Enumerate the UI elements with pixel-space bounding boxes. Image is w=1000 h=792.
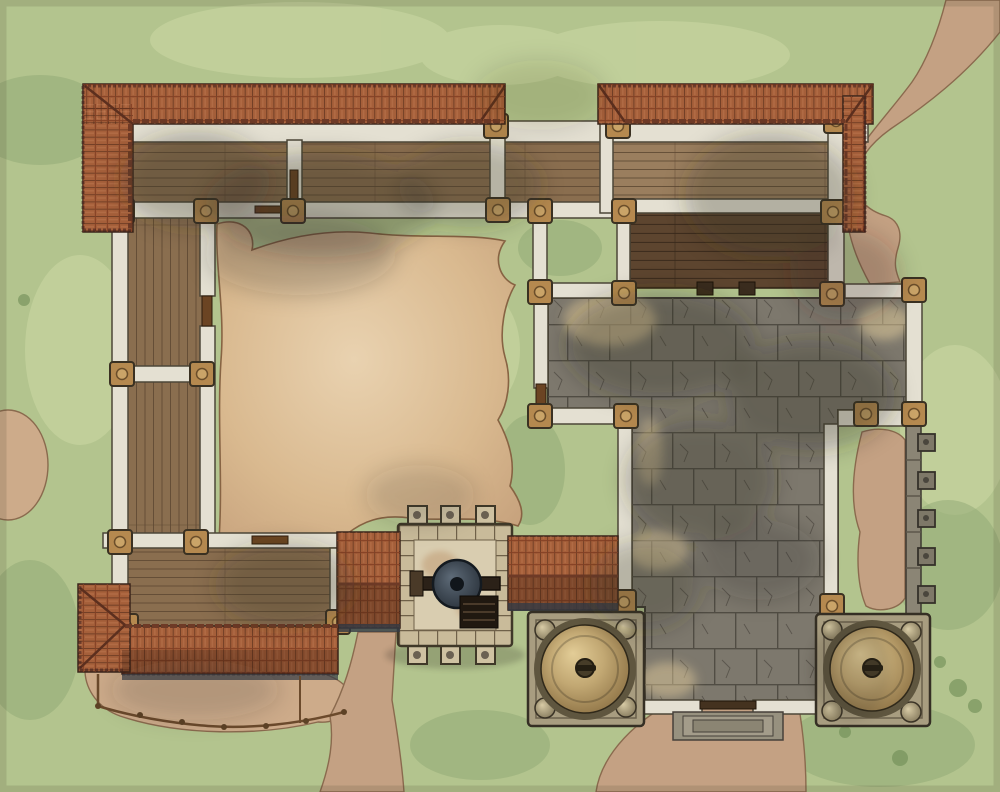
gate-bar	[700, 701, 756, 709]
gatehouse	[385, 506, 525, 669]
winch-bracket	[410, 571, 423, 596]
left-dome-tower	[528, 612, 644, 726]
west-wing-east-wall-b	[200, 326, 215, 545]
right-dome-tower	[810, 614, 930, 726]
west-wing-door	[202, 296, 212, 326]
east-outer-wall	[906, 296, 922, 408]
courtyard-north-wall-a	[548, 283, 618, 298]
deck-step-right	[739, 282, 755, 295]
courtyard-west-door	[536, 384, 546, 406]
courtyard-narrow-east-wall	[824, 424, 838, 614]
courtyard-link-wall	[533, 216, 547, 286]
battle-map	[0, 0, 1000, 792]
courtyard-west-wall	[534, 296, 548, 388]
southwest-wing-door	[252, 536, 288, 544]
east-inner-dirt	[853, 429, 905, 610]
winch-hub	[450, 577, 464, 591]
deck-step-left	[697, 282, 713, 295]
map-canvas	[0, 0, 1000, 792]
west-eave-shadow	[337, 624, 400, 632]
